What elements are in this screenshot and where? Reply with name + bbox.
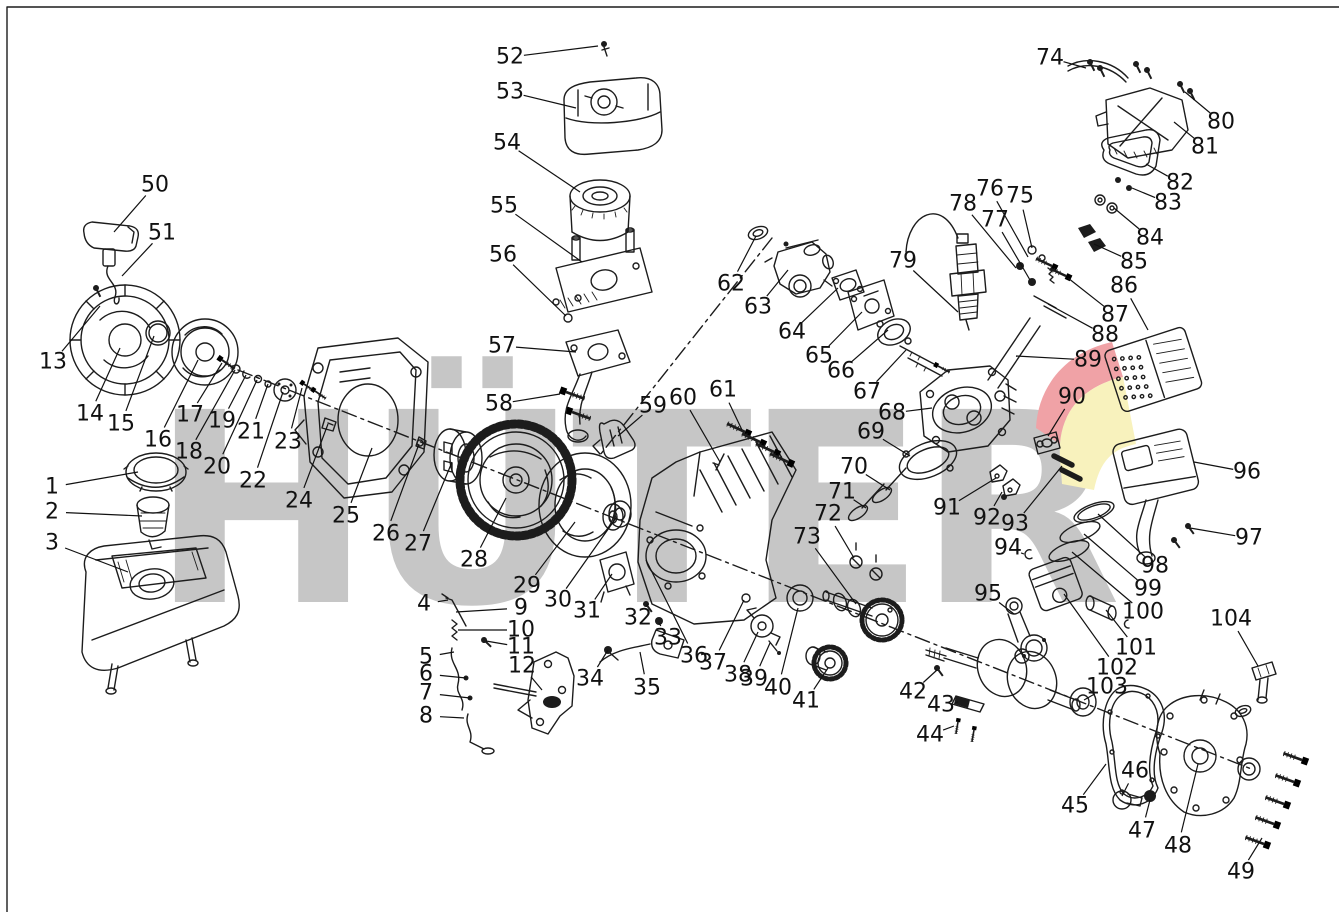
part-number-44: 44 bbox=[916, 723, 944, 748]
air-filter-cover bbox=[564, 41, 662, 154]
part-number-93: 93 bbox=[1001, 512, 1029, 537]
part-number-25: 25 bbox=[332, 504, 360, 529]
part-label-33: 33 bbox=[654, 623, 682, 651]
part-label-52: 52 bbox=[496, 45, 598, 70]
part-number-47: 47 bbox=[1128, 819, 1156, 844]
part-number-85: 85 bbox=[1120, 250, 1148, 275]
part-number-14: 14 bbox=[76, 402, 104, 427]
muffler-hardware bbox=[1016, 195, 1117, 318]
part-number-96: 96 bbox=[1233, 460, 1261, 485]
leader-line-88 bbox=[1048, 304, 1093, 328]
part-label-47: 47 bbox=[1128, 800, 1156, 844]
part-number-62: 62 bbox=[717, 272, 745, 297]
part-number-23: 23 bbox=[274, 430, 302, 455]
part-label-103: 103 bbox=[1084, 675, 1128, 701]
part-number-83: 83 bbox=[1154, 191, 1182, 216]
starter-handle bbox=[84, 222, 139, 304]
part-label-79: 79 bbox=[889, 249, 958, 313]
muffler-protector bbox=[1111, 428, 1200, 564]
part-number-61: 61 bbox=[709, 378, 737, 403]
part-number-3: 3 bbox=[45, 531, 59, 556]
part-number-104: 104 bbox=[1210, 607, 1252, 632]
part-number-78: 78 bbox=[949, 192, 977, 217]
part-number-84: 84 bbox=[1136, 226, 1164, 251]
part-number-88: 88 bbox=[1091, 323, 1119, 348]
part-label-1: 1 bbox=[45, 472, 138, 500]
part-number-60: 60 bbox=[669, 386, 697, 411]
leader-line-2 bbox=[66, 513, 142, 516]
part-number-24: 24 bbox=[285, 489, 313, 514]
leader-line-62 bbox=[738, 236, 757, 272]
part-label-85: 85 bbox=[1094, 244, 1148, 275]
part-number-12: 12 bbox=[508, 654, 536, 679]
part-number-90: 90 bbox=[1058, 385, 1086, 410]
part-number-63: 63 bbox=[744, 295, 772, 320]
part-number-95: 95 bbox=[974, 582, 1002, 607]
leader-line-6 bbox=[440, 675, 466, 678]
part-label-2: 2 bbox=[45, 500, 142, 525]
part-label-63: 63 bbox=[744, 270, 788, 320]
part-number-35: 35 bbox=[633, 676, 661, 701]
part-number-15: 15 bbox=[107, 412, 135, 437]
part-label-56: 56 bbox=[489, 243, 566, 317]
part-number-17: 17 bbox=[176, 403, 204, 428]
leader-line-48 bbox=[1181, 764, 1198, 832]
part-label-75: 75 bbox=[1006, 184, 1034, 249]
part-number-89: 89 bbox=[1074, 348, 1102, 373]
part-number-2: 2 bbox=[45, 500, 59, 525]
part-number-32: 32 bbox=[624, 606, 652, 631]
oil-drain-plug bbox=[1234, 662, 1276, 718]
diagram-canvas: HÜTER bbox=[0, 0, 1339, 912]
part-label-8: 8 bbox=[419, 704, 464, 729]
part-number-79: 79 bbox=[889, 249, 917, 274]
leader-line-8 bbox=[440, 717, 464, 718]
part-number-19: 19 bbox=[208, 409, 236, 434]
part-number-92: 92 bbox=[973, 506, 1001, 531]
part-number-34: 34 bbox=[576, 667, 604, 692]
part-label-45: 45 bbox=[1061, 764, 1106, 819]
part-number-13: 13 bbox=[39, 350, 67, 375]
part-label-44: 44 bbox=[916, 723, 954, 748]
part-number-21: 21 bbox=[237, 420, 265, 445]
part-label-83: 83 bbox=[1132, 188, 1182, 216]
part-label-43: 43 bbox=[927, 693, 958, 718]
part-number-81: 81 bbox=[1191, 135, 1219, 160]
leader-line-44 bbox=[943, 726, 954, 730]
part-number-67: 67 bbox=[853, 380, 881, 405]
part-number-43: 43 bbox=[927, 693, 955, 718]
part-label-48: 48 bbox=[1164, 764, 1198, 859]
part-number-73: 73 bbox=[793, 525, 821, 550]
leader-line-51 bbox=[122, 243, 153, 276]
part-number-42: 42 bbox=[899, 680, 927, 705]
part-number-41: 41 bbox=[792, 689, 820, 714]
part-number-52: 52 bbox=[496, 45, 524, 70]
air-filter-element bbox=[570, 180, 630, 241]
leader-line-52 bbox=[524, 46, 598, 55]
part-number-45: 45 bbox=[1061, 794, 1089, 819]
part-number-64: 64 bbox=[778, 320, 806, 345]
leader-line-14 bbox=[96, 348, 120, 401]
part-number-50: 50 bbox=[141, 173, 169, 198]
leader-line-3 bbox=[65, 548, 128, 572]
carburetor bbox=[747, 224, 951, 376]
part-number-94: 94 bbox=[994, 536, 1022, 561]
part-label-80: 80 bbox=[1185, 92, 1235, 135]
part-label-96: 96 bbox=[1194, 460, 1261, 485]
part-label-104: 104 bbox=[1210, 607, 1258, 667]
part-label-94: 94 bbox=[994, 536, 1024, 561]
part-number-46: 46 bbox=[1121, 759, 1149, 784]
part-number-98: 98 bbox=[1141, 554, 1169, 579]
leader-line-45 bbox=[1083, 764, 1106, 795]
part-number-74: 74 bbox=[1036, 46, 1064, 71]
recoil-starter bbox=[70, 285, 180, 395]
part-number-26: 26 bbox=[372, 522, 400, 547]
leader-line-43 bbox=[955, 702, 958, 703]
part-number-22: 22 bbox=[239, 469, 267, 494]
leader-line-104 bbox=[1238, 631, 1258, 666]
part-label-32: 32 bbox=[624, 604, 652, 631]
leader-line-82 bbox=[1146, 164, 1168, 176]
part-number-59: 59 bbox=[639, 394, 667, 419]
part-label-77: 77 bbox=[981, 208, 1030, 281]
part-number-49: 49 bbox=[1227, 860, 1255, 885]
part-number-58: 58 bbox=[485, 392, 513, 417]
part-number-27: 27 bbox=[404, 532, 432, 557]
leader-line-56 bbox=[513, 265, 566, 316]
part-number-48: 48 bbox=[1164, 834, 1192, 859]
part-number-56: 56 bbox=[489, 243, 517, 268]
part-number-29: 29 bbox=[513, 574, 541, 599]
part-number-8: 8 bbox=[419, 704, 433, 729]
leader-line-7 bbox=[440, 695, 470, 698]
part-number-55: 55 bbox=[490, 194, 518, 219]
part-number-80: 80 bbox=[1207, 110, 1235, 135]
part-number-69: 69 bbox=[857, 420, 885, 445]
leader-line-83 bbox=[1132, 188, 1155, 198]
exploded-parts-diagram: HÜTER bbox=[0, 0, 1339, 912]
part-label-64: 64 bbox=[778, 288, 838, 345]
part-number-4: 4 bbox=[417, 592, 431, 617]
part-number-97: 97 bbox=[1235, 526, 1263, 551]
part-number-76: 76 bbox=[976, 177, 1004, 202]
part-number-40: 40 bbox=[764, 676, 792, 701]
leader-line-53 bbox=[524, 95, 576, 108]
part-number-28: 28 bbox=[460, 548, 488, 573]
leader-line-86 bbox=[1131, 298, 1148, 330]
part-number-66: 66 bbox=[827, 359, 855, 384]
leader-line-63 bbox=[767, 270, 788, 296]
part-number-51: 51 bbox=[148, 221, 176, 246]
part-label-57: 57 bbox=[488, 334, 576, 359]
part-label-46: 46 bbox=[1121, 759, 1149, 797]
part-number-53: 53 bbox=[496, 80, 524, 105]
part-number-20: 20 bbox=[203, 455, 231, 480]
exhaust-gasket bbox=[1102, 130, 1160, 175]
leader-line-87 bbox=[1068, 278, 1104, 306]
part-number-75: 75 bbox=[1006, 184, 1034, 209]
part-number-103: 103 bbox=[1086, 675, 1128, 700]
leader-line-97 bbox=[1190, 528, 1235, 536]
part-number-18: 18 bbox=[175, 440, 203, 465]
leader-line-85 bbox=[1094, 244, 1121, 256]
part-number-31: 31 bbox=[573, 599, 601, 624]
leader-line-54 bbox=[519, 151, 580, 192]
part-number-86: 86 bbox=[1110, 274, 1138, 299]
part-number-30: 30 bbox=[544, 588, 572, 613]
part-number-100: 100 bbox=[1122, 600, 1164, 625]
part-number-33: 33 bbox=[654, 626, 682, 651]
leader-line-57 bbox=[516, 347, 576, 352]
part-label-49: 49 bbox=[1227, 838, 1262, 885]
leader-line-96 bbox=[1194, 462, 1233, 469]
crankcase-gasket bbox=[1103, 686, 1164, 805]
leader-line-75 bbox=[1023, 210, 1032, 248]
part-number-7: 7 bbox=[419, 681, 433, 706]
part-number-77: 77 bbox=[981, 208, 1009, 233]
part-number-16: 16 bbox=[144, 428, 172, 453]
part-number-99: 99 bbox=[1134, 577, 1162, 602]
part-number-70: 70 bbox=[840, 455, 868, 480]
part-label-54: 54 bbox=[493, 131, 580, 193]
spark-plug bbox=[906, 214, 986, 330]
leader-line-12 bbox=[531, 677, 542, 690]
part-number-37: 37 bbox=[699, 651, 727, 676]
part-label-97: 97 bbox=[1190, 526, 1263, 551]
part-number-57: 57 bbox=[488, 334, 516, 359]
part-number-91: 91 bbox=[933, 496, 961, 521]
part-number-54: 54 bbox=[493, 131, 521, 156]
part-number-1: 1 bbox=[45, 475, 59, 500]
part-number-72: 72 bbox=[814, 502, 842, 527]
